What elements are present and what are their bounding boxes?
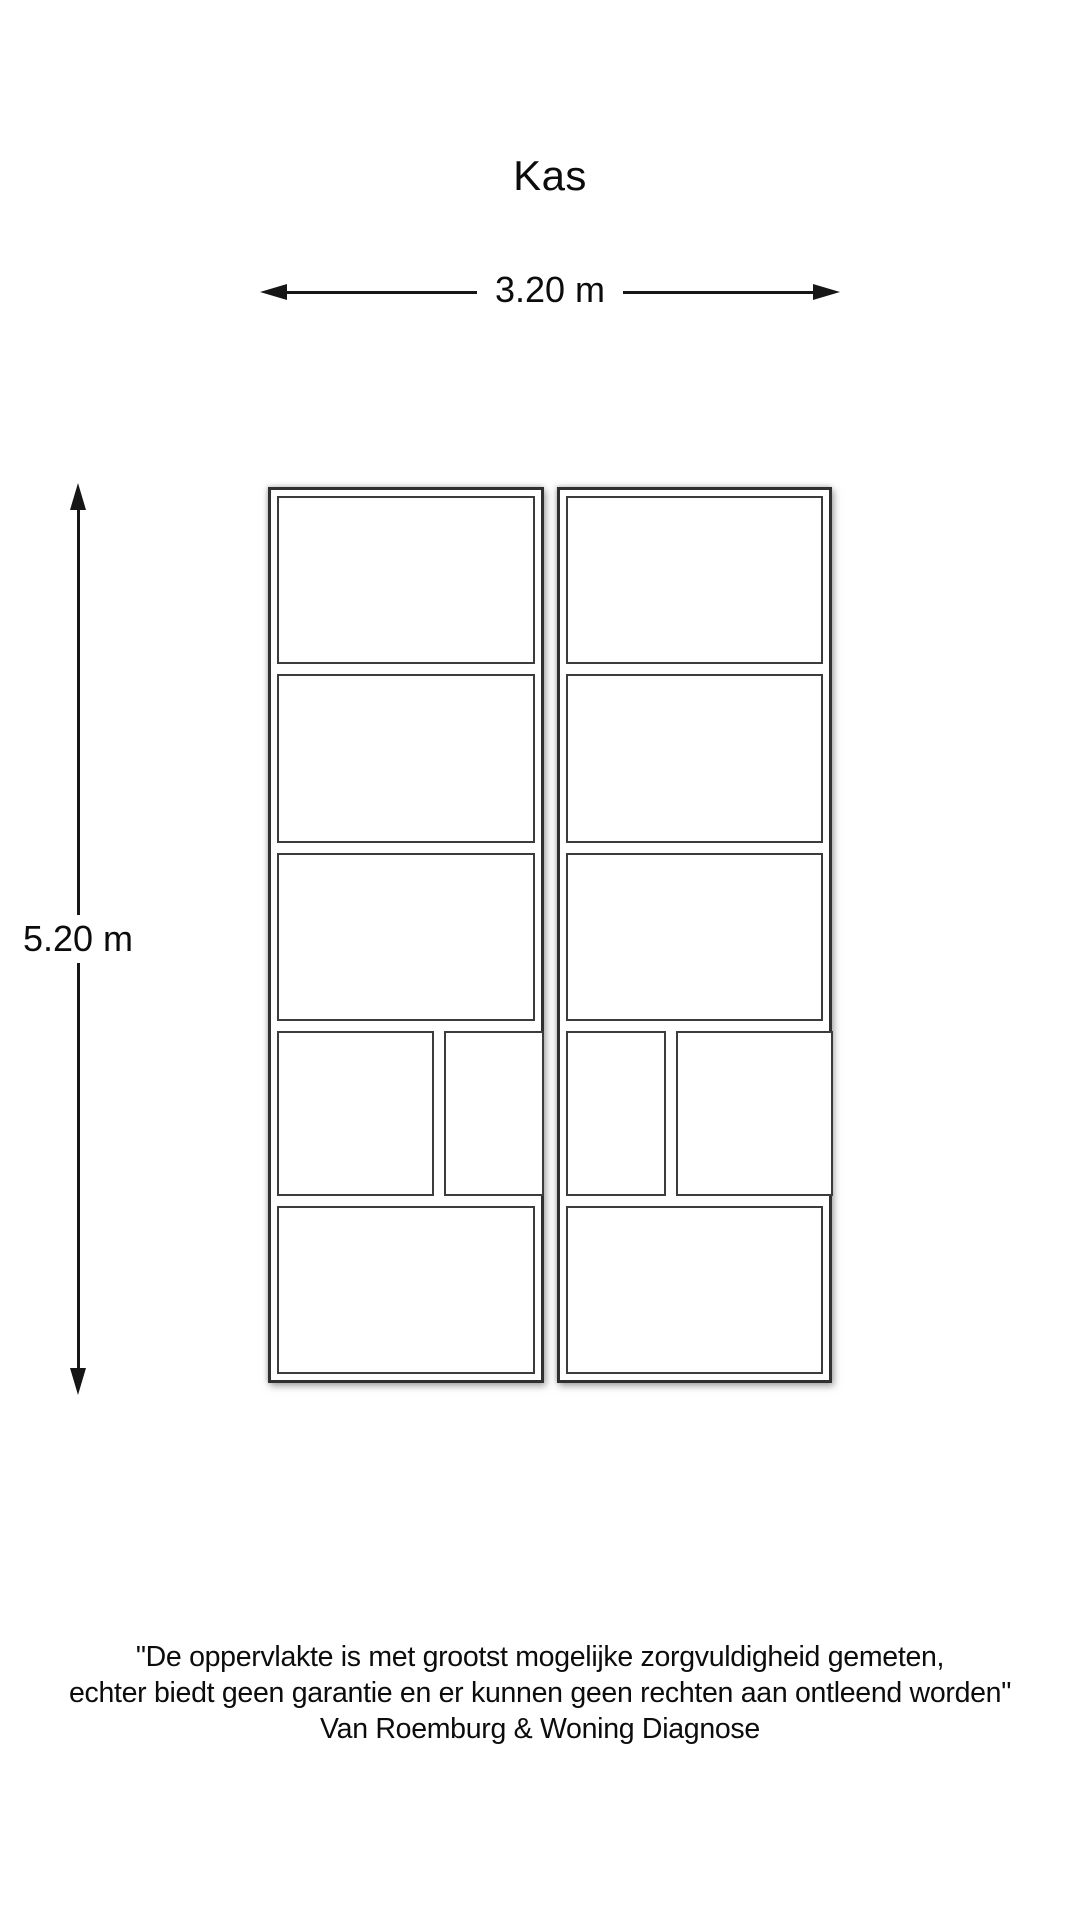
arrow-up-icon [70, 483, 86, 510]
arrow-right-icon [813, 284, 840, 300]
disclaimer-line-2: echter biedt geen garantie en er kunnen … [0, 1675, 1080, 1711]
glass-panel [277, 1206, 535, 1374]
glass-panel [566, 853, 824, 1021]
width-dimension-line-left [287, 291, 477, 294]
company-name: Van Roemburg & Woning Diagnose [0, 1711, 1080, 1747]
arrow-down-icon [70, 1368, 86, 1395]
floorplan-page: { "title": "Kas", "dimensions": { "width… [0, 0, 1080, 1920]
width-dimension: 3.20 m [260, 276, 840, 308]
height-dimension: 5.20 m [63, 483, 93, 1395]
floor-plan [268, 487, 832, 1383]
disclaimer: "De oppervlakte is met grootst mogelijke… [0, 1639, 1080, 1747]
glass-panel [277, 853, 535, 1021]
glass-panel [277, 496, 535, 664]
width-label: 3.20 m [477, 269, 623, 311]
width-dimension-line-right [623, 291, 813, 294]
height-dimension-line-top [77, 510, 80, 915]
glass-panel [566, 1031, 666, 1195]
page-title: Kas [268, 152, 832, 200]
disclaimer-line-1: "De oppervlakte is met grootst mogelijke… [0, 1639, 1080, 1675]
glass-panel [277, 1031, 434, 1195]
glass-panel [566, 674, 824, 842]
height-dimension-line-bottom [77, 963, 80, 1368]
height-label-gap: 5.20 m [63, 915, 93, 963]
arrow-left-icon [260, 284, 287, 300]
glass-panel [676, 1031, 833, 1195]
glass-panel [277, 674, 535, 842]
glass-panel-split-row [566, 1031, 824, 1195]
glass-panel [444, 1031, 544, 1195]
height-label: 5.20 m [23, 918, 133, 960]
glass-panel [566, 1206, 824, 1374]
greenhouse-column-left [268, 487, 544, 1383]
glass-panel-split-row [277, 1031, 535, 1195]
glass-panel [566, 496, 824, 664]
greenhouse-column-right [557, 487, 833, 1383]
